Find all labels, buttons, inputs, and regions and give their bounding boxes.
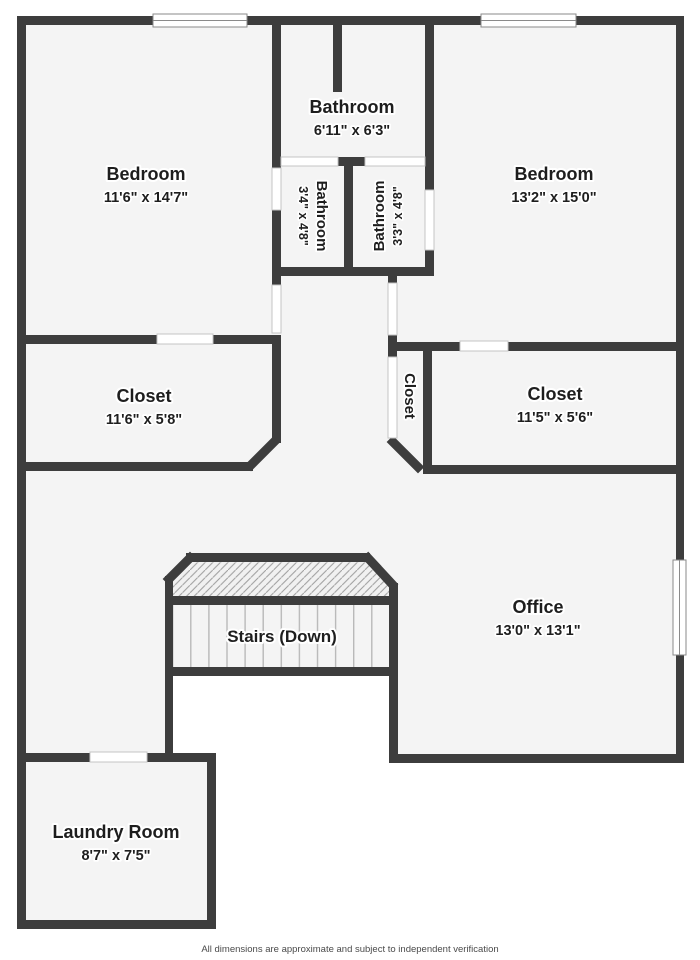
door-ensuite-right-side [425,190,434,250]
wall-closet-center-right [423,342,432,473]
room-dims-bathroom-ensuite-right: 3'3" x 4'8" [391,186,405,246]
room-name-closet-center: Closet [401,373,418,419]
wall-stairs-band-upper [167,596,396,605]
door-ensuite-right-top [365,157,425,166]
room-name-closet-right: Closet [527,384,582,404]
floor-office [394,560,680,757]
wall-closets-top-b [508,342,677,351]
wall-hall-right-stub-a [388,267,397,283]
wall-hall-bottom-left [17,753,90,762]
wall-closet-right-bottom [423,465,684,474]
wall-top [17,16,684,25]
room-dims-closet-right: 11'5" x 5'6" [517,410,593,426]
stairs-hatch-landing [168,557,394,597]
wall-office-bottom [390,754,684,763]
door-closet-right [460,341,508,351]
door-closet-center [388,357,397,438]
window-bedroom-right [481,14,576,27]
room-dims-bedroom-right: 13'2" x 15'0" [511,190,596,206]
stairwell-void [173,676,389,762]
floor-corridor-left [21,560,169,757]
wall-stairs-right [389,583,398,763]
wall-stairs-band-lower [167,667,396,676]
wall-closet-left-right [272,335,281,443]
room-name-bedroom-left: Bedroom [106,164,185,184]
room-dims-bathroom-top: 6'11" x 6'3" [314,123,390,139]
wall-left [17,16,26,929]
wall-closet-left-top-b [213,335,281,344]
room-name-stairs: Stairs (Down) [227,627,337,646]
wall-closet-left-bottom [17,462,253,471]
disclaimer-text: All dimensions are approximate and subje… [201,944,498,955]
wall-bathroom-stub [333,16,342,92]
door-bedroom-left [272,285,281,333]
door-ensuite-left-top [281,157,338,166]
room-dims-bedroom-left: 11'6" x 14'7" [104,190,188,206]
room-dims-bathroom-ensuite-left: 3'4" x 4'8" [296,186,310,246]
door-laundry [90,752,147,762]
stairs-graphics [168,557,394,667]
wall-stairs-left [165,576,173,762]
room-name-bathroom-ensuite-right: Bathroom [371,181,388,252]
wall-bathroom-left-upper [272,16,281,168]
room-name-bathroom-ensuite-left: Bathroom [313,181,330,252]
room-name-office: Office [512,597,563,617]
room-name-bathroom-top: Bathroom [310,97,395,117]
room-name-closet-left: Closet [116,386,171,406]
room-dims-office: 13'0" x 13'1" [495,623,580,639]
door-closet-left [157,334,213,344]
door-ensuite-left-side [272,168,281,210]
wall-smallbaths-bottom [272,267,433,276]
wall-bedroom-right-upper [425,16,434,190]
window-bedroom-left [153,14,247,27]
wall-stairs-top [186,553,370,562]
wall-closet-left-top-a [17,335,157,344]
room-name-laundry: Laundry Room [52,822,179,842]
room-label-closet-center: Closet [401,373,418,419]
room-name-bedroom-right: Bedroom [514,164,593,184]
window-office [673,560,686,655]
floor-plan: Bedroom 11'6" x 14'7" Bathroom 6'11" x 6… [0,0,700,960]
door-bedroom-right [388,283,397,335]
floor-plan-page: Bedroom 11'6" x 14'7" Bathroom 6'11" x 6… [0,0,700,960]
room-dims-closet-left: 11'6" x 5'8" [106,412,182,428]
wall-smallbaths-divider [344,157,353,276]
wall-laundry-bottom [17,920,216,929]
room-dims-laundry: 8'7" x 7'5" [81,848,150,864]
wall-laundry-right [207,753,216,929]
wall-bedroom-right-lower [425,250,434,276]
wall-hall-bottom-right [147,753,215,762]
room-label-stairs: Stairs (Down) [227,627,337,646]
